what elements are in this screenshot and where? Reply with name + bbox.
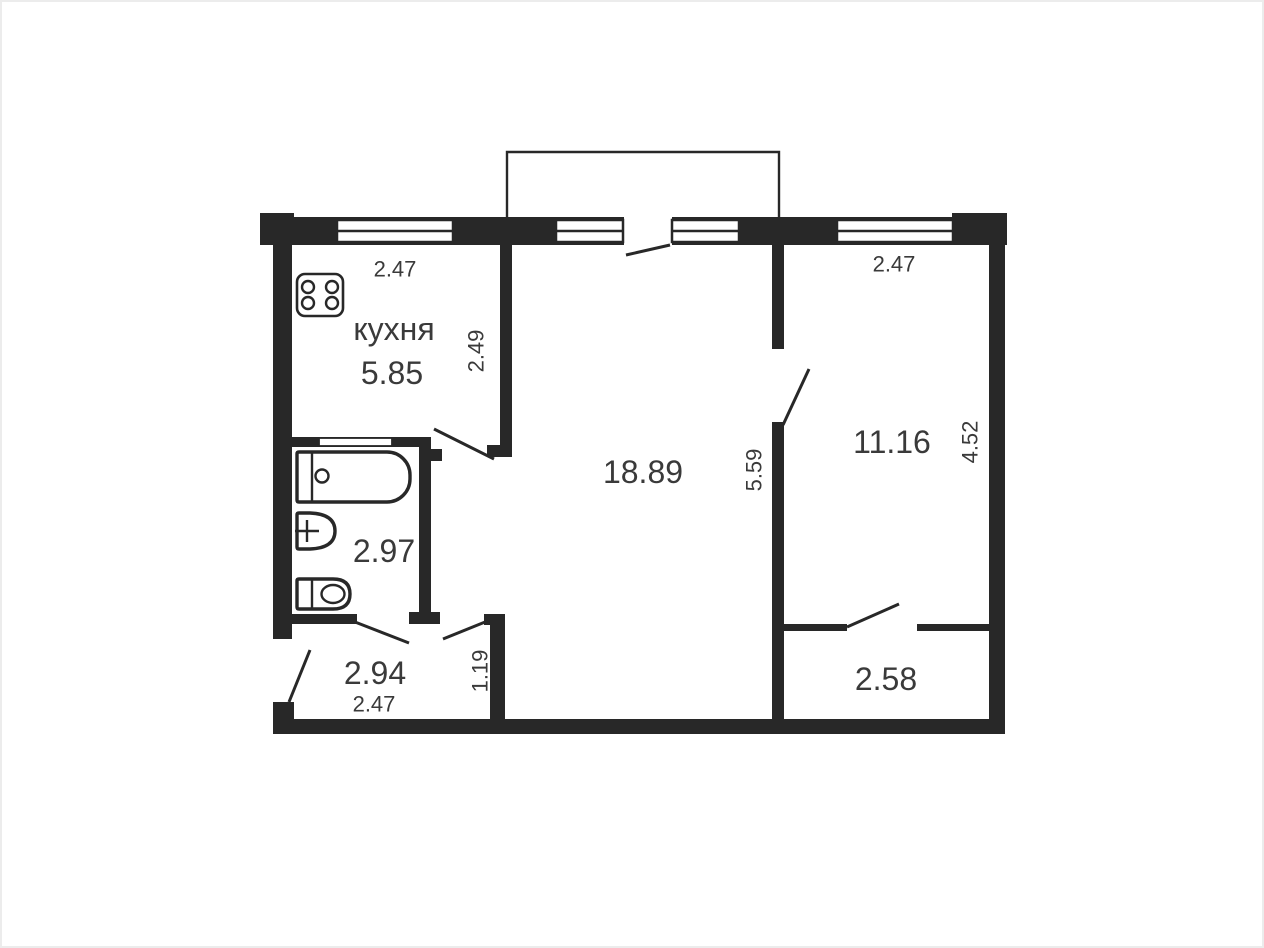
balcony-door-opening (624, 215, 672, 246)
door-swing-balcony (626, 245, 670, 255)
wall-segment-bottom (273, 719, 1005, 734)
dim-bedroom-width: 2.47 (873, 252, 916, 277)
room-area-small-room: 2.58 (855, 661, 917, 697)
toilet-body (297, 579, 350, 609)
wall-bathroom-right (419, 437, 431, 615)
toilet-icon (297, 579, 350, 609)
wall-partition (917, 624, 989, 631)
wall-segment-right (989, 245, 1005, 734)
labels: кухня 5.85 2.47 2.49 18.89 5.59 11.16 2.… (344, 252, 983, 717)
room-area-hallway: 2.94 (344, 655, 406, 691)
door-swing-entrance (289, 650, 310, 702)
wall-kitchen-right (500, 245, 512, 457)
room-area-bedroom: 11.16 (853, 424, 931, 460)
stove-body (297, 274, 343, 316)
wall-living-right-upper (772, 245, 784, 349)
room-area-kitchen: 5.85 (361, 355, 423, 391)
dim-kitchen-depth: 2.49 (464, 330, 489, 373)
dim-hallway-width: 2.47 (353, 692, 396, 717)
door-swing-bedroom (783, 369, 809, 425)
door-swing-kitchen (434, 429, 494, 459)
floor-plan-canvas: кухня 5.85 2.47 2.49 18.89 5.59 11.16 2.… (0, 0, 1264, 948)
dim-living-depth: 5.59 (742, 449, 767, 492)
wall-bathroom-bottom (292, 614, 357, 624)
wall-segment (429, 449, 442, 461)
room-area-living: 18.89 (603, 454, 683, 490)
dim-bedroom-depth: 4.52 (958, 421, 983, 464)
room-area-bathroom: 2.97 (353, 533, 415, 569)
sink-icon (295, 513, 335, 549)
window-bathroom-transom (319, 438, 392, 446)
wall-segment (487, 445, 512, 457)
wall-segment (409, 612, 440, 624)
bathtub-icon (297, 452, 410, 502)
room-name-kitchen: кухня (353, 311, 434, 347)
door-swing-hallway-living (443, 620, 490, 639)
bathtub-body (297, 452, 410, 502)
door-swing-small-room (847, 604, 899, 627)
wall-living-right-lower (772, 422, 784, 734)
door-swing-bathroom (355, 622, 409, 643)
wall-segment-left (273, 217, 292, 639)
stove-icon (297, 274, 343, 316)
balcony-outline (507, 152, 779, 217)
dim-hallway-depth: 1.19 (468, 650, 493, 693)
wall-partition (784, 624, 847, 631)
floor-plan-drawing: кухня 5.85 2.47 2.49 18.89 5.59 11.16 2.… (2, 2, 1264, 948)
dim-kitchen-width: 2.47 (374, 257, 417, 282)
